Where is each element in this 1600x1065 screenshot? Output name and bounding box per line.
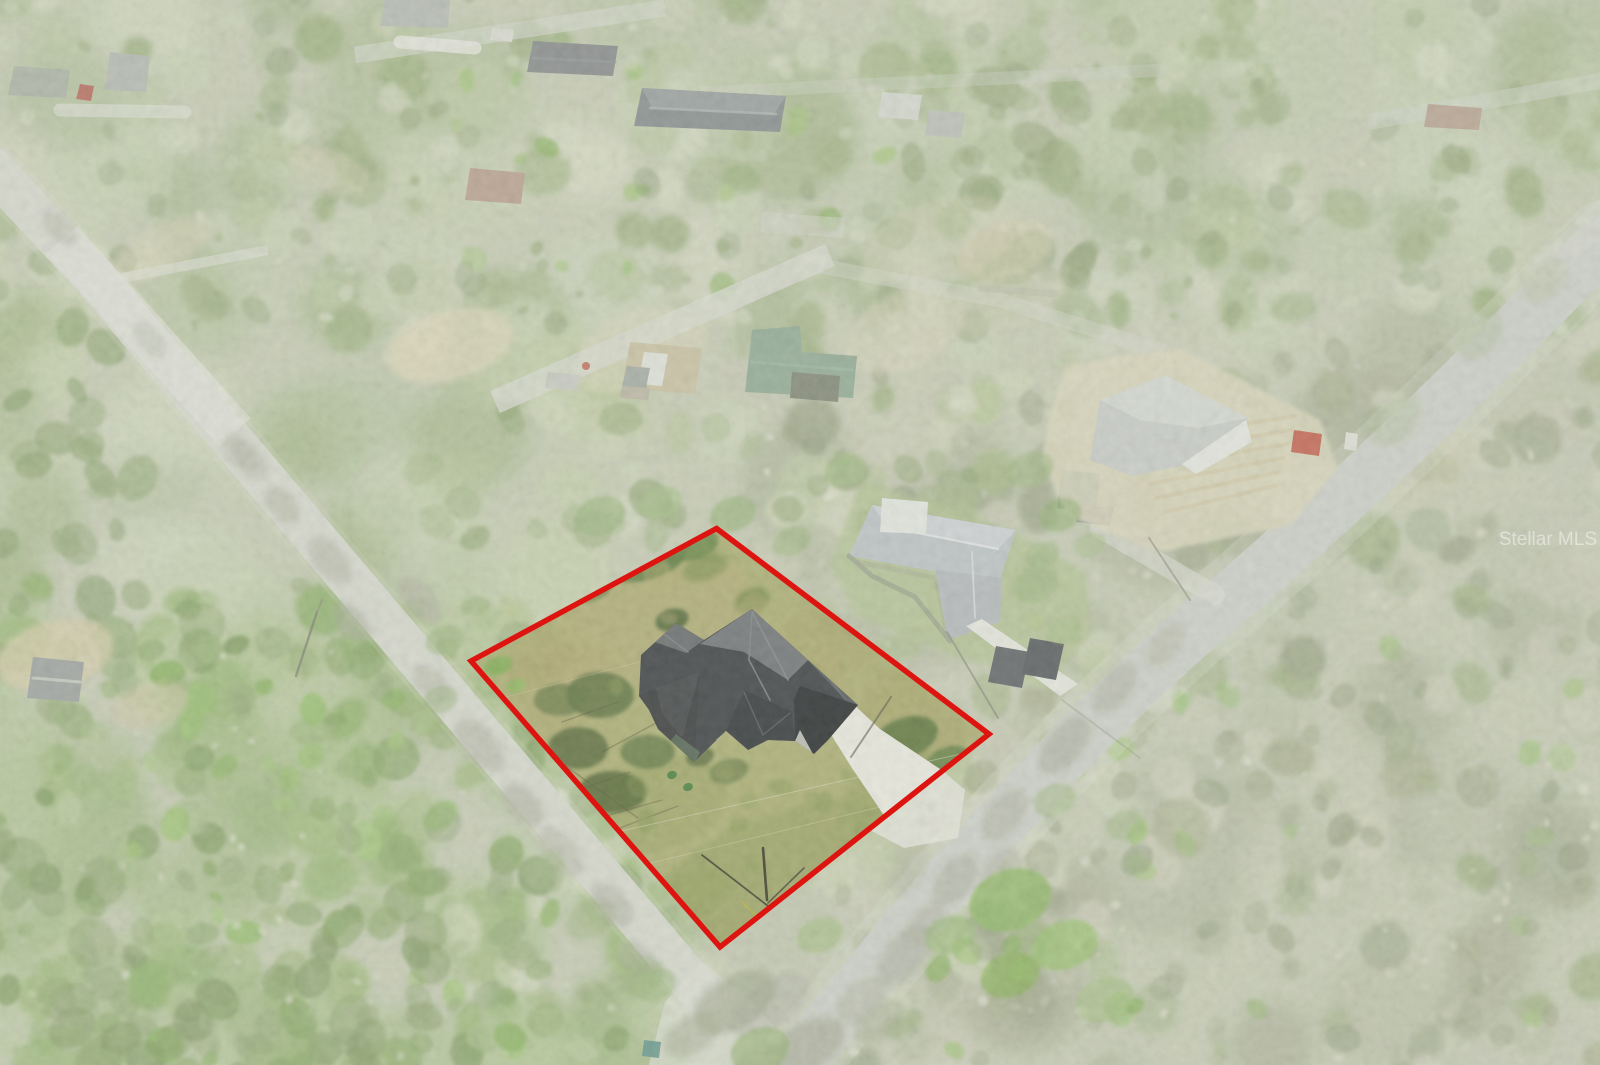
svg-text:Stellar MLS: Stellar MLS	[1499, 529, 1597, 550]
